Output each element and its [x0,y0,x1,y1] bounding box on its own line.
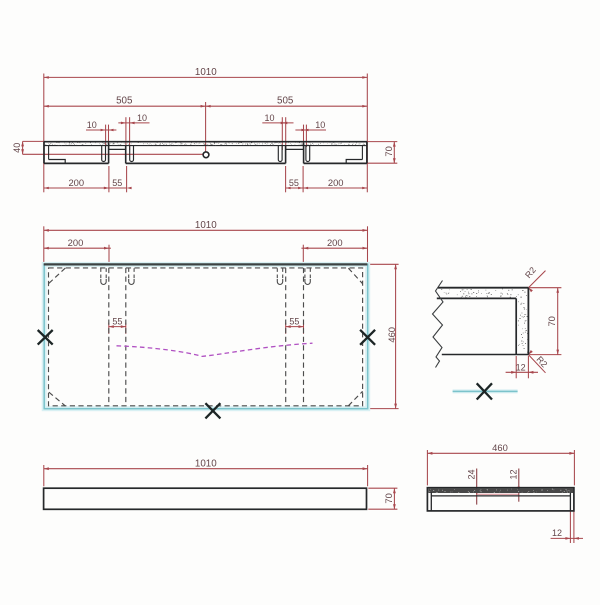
svg-text:1010: 1010 [195,67,217,78]
svg-text:55: 55 [289,317,299,327]
svg-text:200: 200 [327,237,343,248]
svg-text:55: 55 [112,317,122,327]
svg-text:1010: 1010 [195,458,217,469]
svg-text:460: 460 [492,442,508,453]
svg-text:40: 40 [12,143,22,153]
svg-text:55: 55 [112,178,122,188]
svg-text:12: 12 [516,362,526,372]
svg-text:460: 460 [386,327,397,343]
svg-text:10: 10 [264,113,274,123]
svg-text:12: 12 [552,528,562,538]
svg-text:R2: R2 [535,354,550,369]
svg-text:200: 200 [68,237,84,248]
svg-text:10: 10 [315,120,325,130]
svg-text:10: 10 [87,120,97,130]
svg-text:505: 505 [277,96,294,107]
svg-text:1010: 1010 [195,220,217,231]
svg-text:R2: R2 [523,265,538,280]
svg-text:55: 55 [289,178,299,188]
svg-text:12: 12 [509,469,519,479]
svg-text:24: 24 [466,469,476,479]
svg-text:505: 505 [116,96,133,107]
svg-text:200: 200 [328,177,344,188]
svg-text:200: 200 [68,177,84,188]
svg-text:10: 10 [137,113,147,123]
svg-text:70: 70 [383,146,394,156]
svg-text:70: 70 [546,316,557,326]
svg-text:70: 70 [383,493,394,503]
